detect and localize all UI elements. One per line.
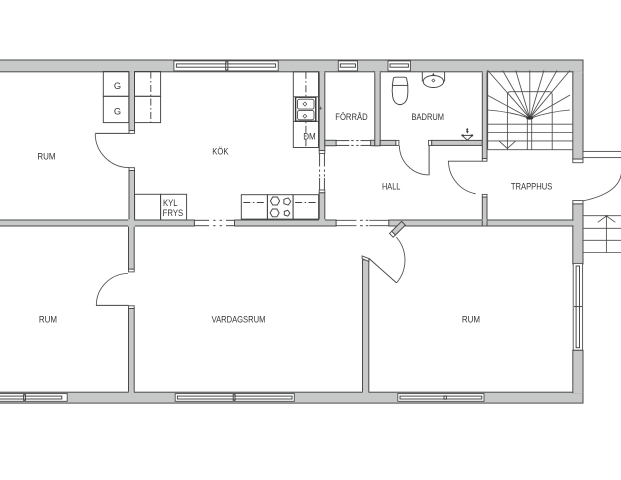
svg-text:VARDAGSRUM: VARDAGSRUM: [212, 314, 266, 324]
svg-text:RUM: RUM: [462, 314, 480, 324]
svg-text:RUM: RUM: [37, 151, 55, 161]
svg-text:DM: DM: [303, 132, 316, 142]
svg-text:G: G: [114, 106, 121, 116]
svg-text:TRAPPHUS: TRAPPHUS: [511, 182, 552, 192]
svg-text:FÖRRÅD: FÖRRÅD: [335, 112, 368, 122]
svg-text:RUM: RUM: [39, 314, 57, 324]
svg-text:G: G: [114, 81, 121, 91]
svg-text:FRYS: FRYS: [163, 208, 184, 218]
svg-text:KYL: KYL: [163, 198, 178, 208]
svg-text:KÖK: KÖK: [212, 147, 229, 157]
svg-text:HALL: HALL: [382, 182, 400, 192]
svg-text:BADRUM: BADRUM: [412, 112, 445, 122]
